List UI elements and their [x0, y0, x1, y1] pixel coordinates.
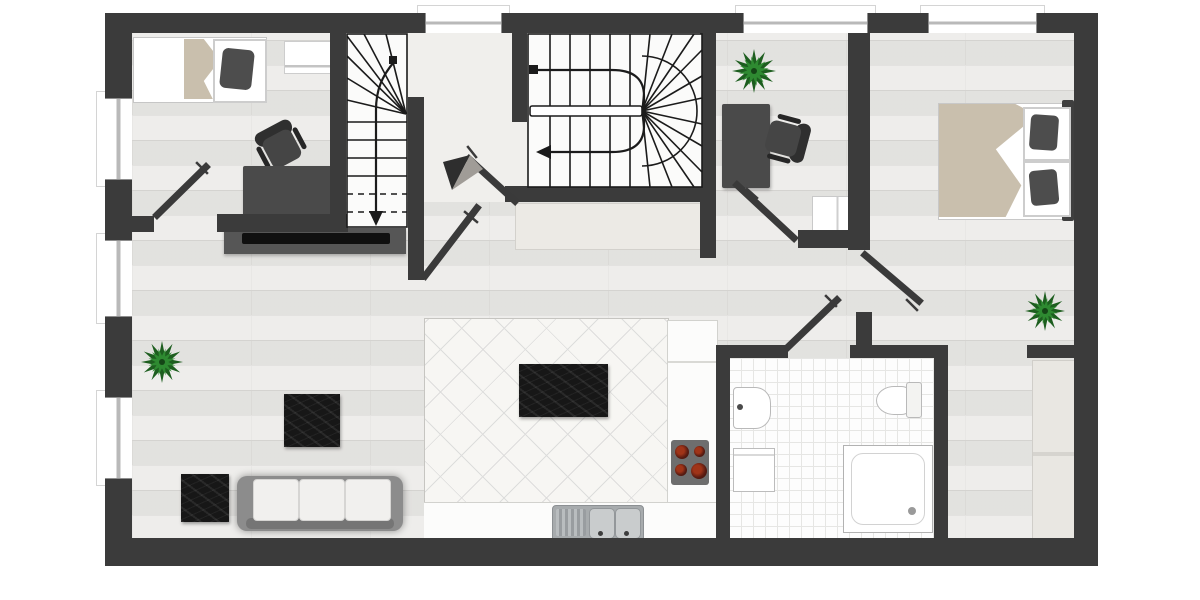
- wall-shelf: [284, 41, 334, 74]
- pillow: [1029, 114, 1059, 151]
- wall-office-right: [848, 13, 870, 250]
- sofa-cushion: [345, 479, 391, 521]
- toilet-tank: [906, 382, 922, 418]
- wall-stair-right: [408, 97, 424, 280]
- sofa-cushion: [253, 479, 299, 521]
- outer-wall-bottom: [105, 538, 1098, 566]
- wall-mainstair-left: [512, 33, 527, 122]
- hall-floor: [346, 33, 716, 202]
- desk: [243, 166, 336, 216]
- wall-bath-right: [934, 345, 948, 541]
- wardrobe: [1032, 360, 1078, 548]
- pillow: [219, 47, 255, 90]
- window: [105, 98, 132, 180]
- pillow: [1029, 169, 1060, 206]
- floor-plan: [0, 0, 1200, 600]
- outer-wall-right: [1074, 13, 1098, 566]
- wall-entry-stub: [132, 216, 154, 232]
- wall-bath-left: [716, 345, 730, 541]
- wall-closet-top: [1027, 345, 1076, 358]
- dining-table: [519, 364, 608, 417]
- window: [743, 13, 868, 33]
- burner: [694, 446, 705, 457]
- burner: [675, 464, 687, 476]
- wall-mainstair-bottom: [505, 186, 716, 202]
- wall-stair-left: [330, 33, 346, 230]
- wall-room1-bottom: [217, 214, 348, 232]
- faucet: [624, 531, 629, 536]
- wall-office-left: [700, 13, 716, 258]
- faucet: [598, 531, 603, 536]
- coffee-table: [284, 394, 340, 447]
- basin-tap: [737, 404, 743, 410]
- window: [928, 13, 1037, 33]
- sofa-cushion: [299, 479, 345, 521]
- wall-office-bottom: [798, 230, 870, 248]
- side-table: [181, 474, 229, 522]
- washing-machine: [733, 448, 775, 492]
- tv: [242, 233, 390, 244]
- burner: [675, 445, 689, 459]
- window: [105, 240, 132, 317]
- hall-sideboard: [515, 203, 709, 250]
- burner: [691, 463, 707, 479]
- window: [105, 397, 132, 479]
- sink-drainboard: [556, 509, 586, 536]
- shower-drain: [908, 507, 916, 515]
- window: [425, 13, 502, 33]
